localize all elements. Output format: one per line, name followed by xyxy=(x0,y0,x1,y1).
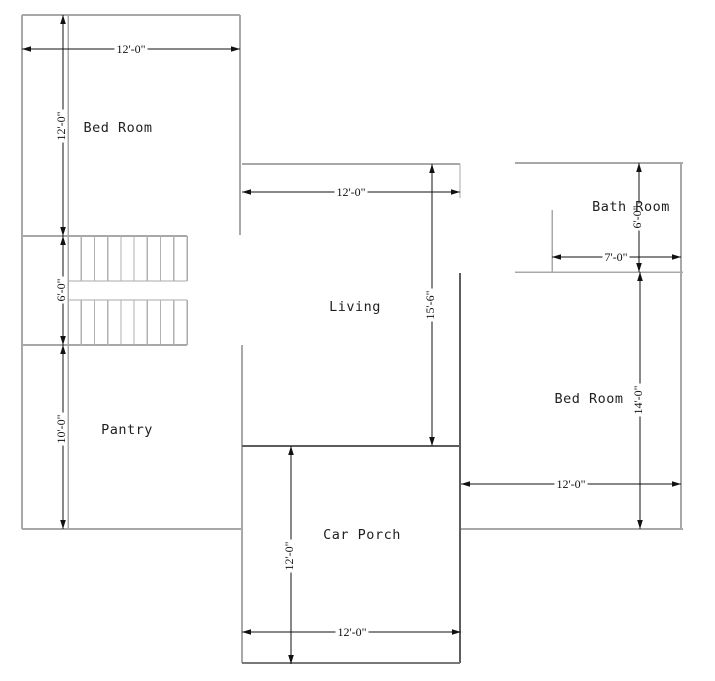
dimension-arrow xyxy=(60,15,66,24)
dimension-label: 12'-0" xyxy=(554,478,587,490)
dimension-arrow xyxy=(60,336,66,345)
room-label-pantry: Pantry xyxy=(101,422,153,438)
floor-plan: 12'-0"12'-0"6'-0"10'-0"12'-0"15'-6"6'-0"… xyxy=(0,0,715,681)
dimension-arrow xyxy=(461,481,470,487)
room-label-bath-room: Bath Room xyxy=(592,199,670,215)
dimension-arrow xyxy=(60,520,66,529)
dimension-arrow xyxy=(672,481,681,487)
dimension-arrow xyxy=(672,254,681,260)
dimension-arrow xyxy=(231,46,240,52)
dimension-arrow xyxy=(429,164,435,173)
dimension-arrow xyxy=(552,254,561,260)
room-label-living: Living xyxy=(329,299,381,315)
dimension-arrow xyxy=(288,446,294,455)
dimension-arrow xyxy=(429,437,435,446)
dimension-label: 12'-0" xyxy=(335,626,368,638)
room-label-bedroom-right: Bed Room xyxy=(554,391,623,407)
dimension-arrow xyxy=(22,46,31,52)
dimension-label: 10'-0" xyxy=(55,412,67,445)
dimension-arrow xyxy=(242,189,251,195)
dimension-label: 14'-0" xyxy=(632,383,644,416)
dimension-arrow xyxy=(60,345,66,354)
dimension-label: 12'-0" xyxy=(334,186,367,198)
dimension-label: 12'-0" xyxy=(114,43,147,55)
dimension-label: 6'-0" xyxy=(55,276,67,303)
dimension-arrow xyxy=(636,263,642,272)
plan-linework xyxy=(0,0,715,681)
dimension-arrow xyxy=(637,520,643,529)
dimension-label: 12'-0" xyxy=(55,109,67,142)
dimension-label: 15'-6" xyxy=(424,288,436,321)
dimension-arrow xyxy=(242,629,251,635)
dimension-label: 7'-0" xyxy=(602,251,629,263)
dimension-arrow xyxy=(637,272,643,281)
dimension-arrow xyxy=(451,189,460,195)
dimension-arrow xyxy=(636,163,642,172)
dimension-arrow xyxy=(60,227,66,236)
room-label-bedroom-left: Bed Room xyxy=(83,120,152,136)
room-label-car-porch: Car Porch xyxy=(323,527,401,543)
dimension-label: 12'-0" xyxy=(283,539,295,572)
dimension-arrow xyxy=(60,236,66,245)
